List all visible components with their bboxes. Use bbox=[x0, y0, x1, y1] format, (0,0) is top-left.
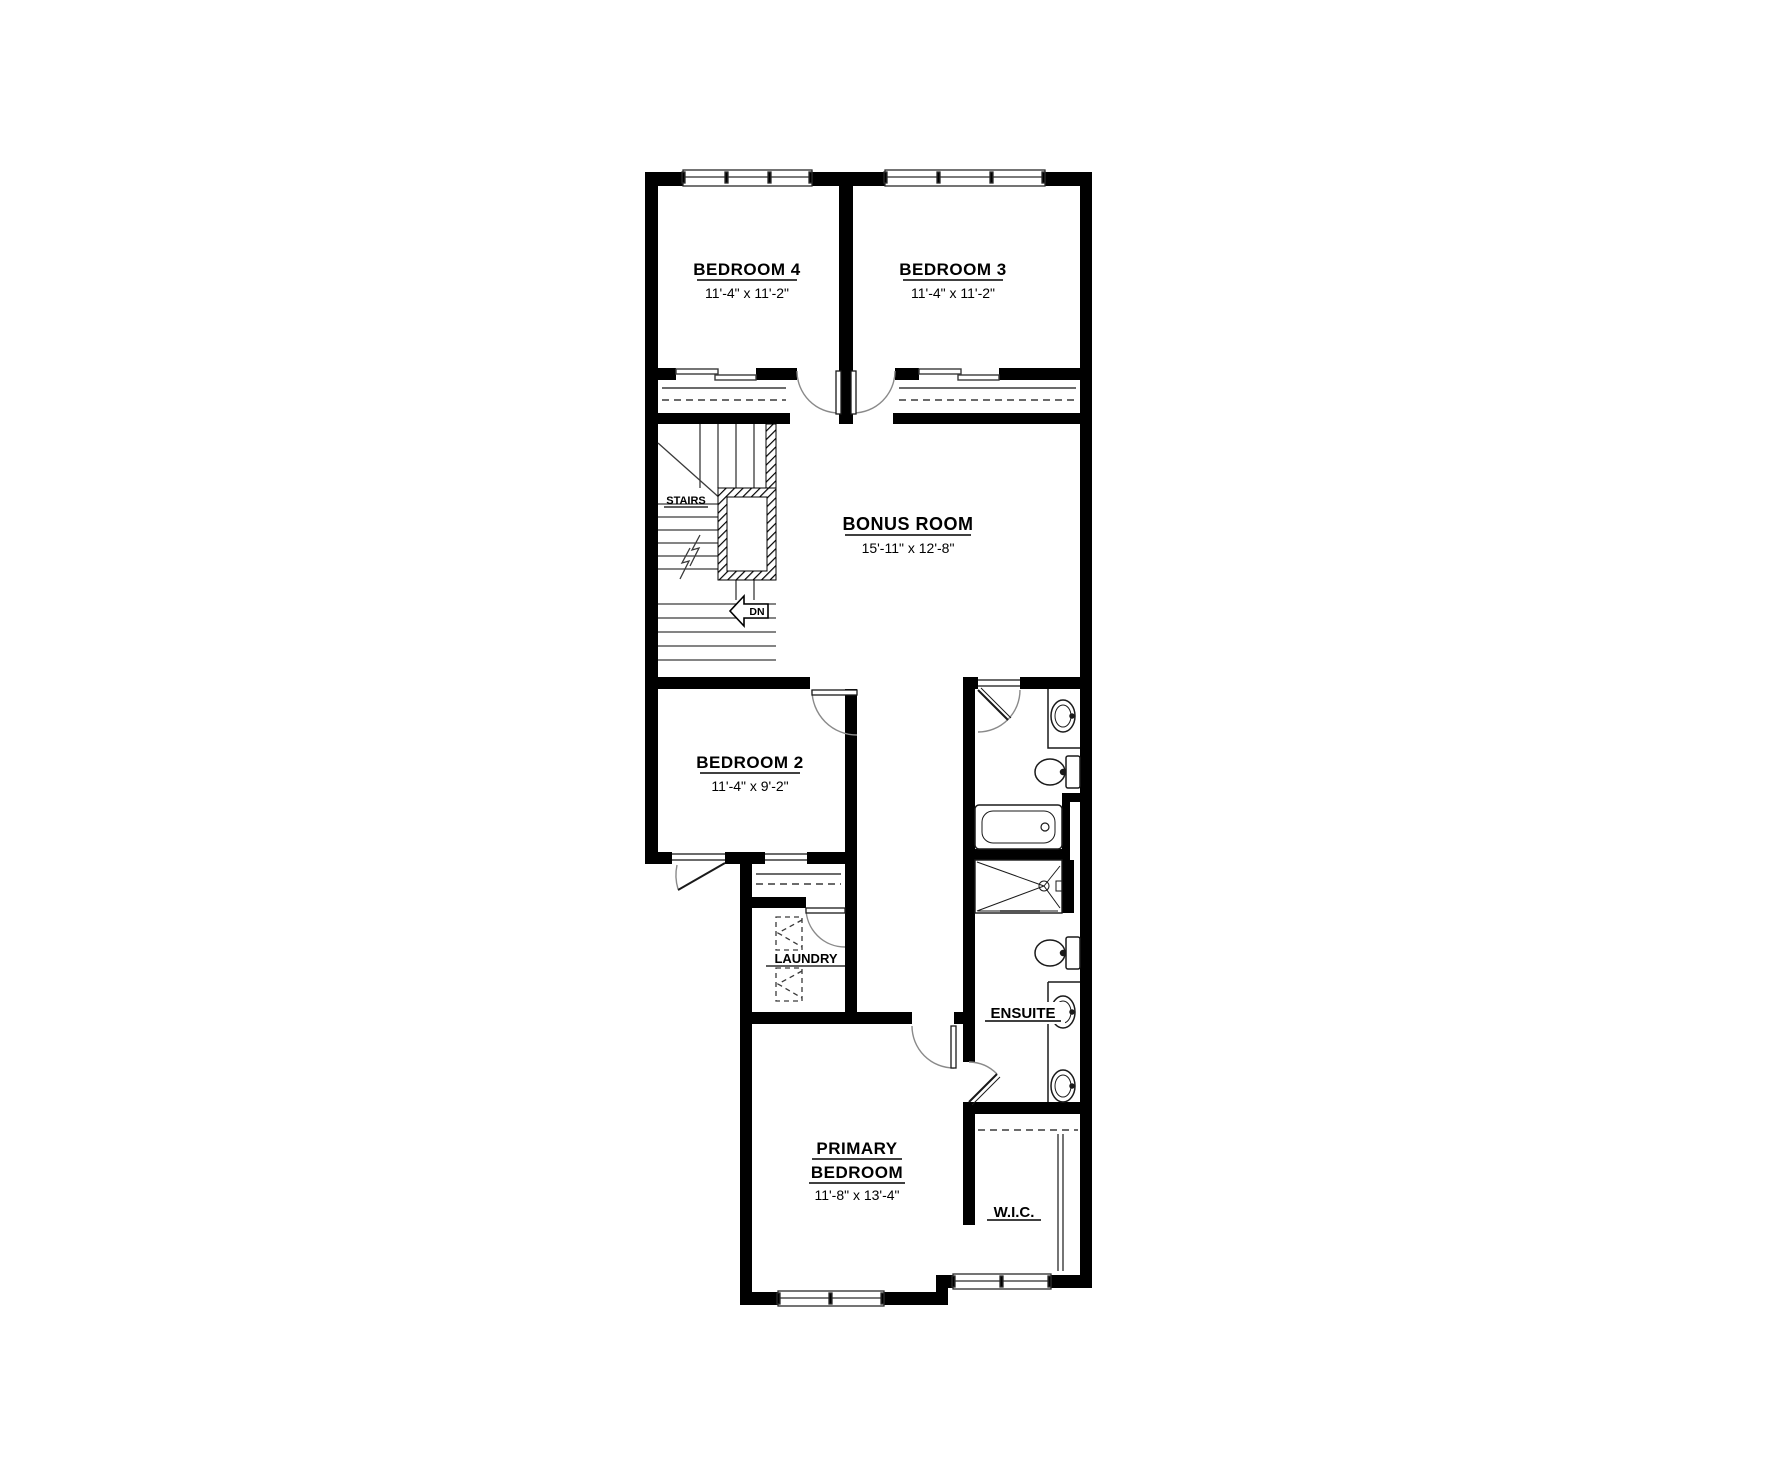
wall-closet-bottom-right bbox=[893, 413, 1080, 424]
exterior-door-arc bbox=[676, 865, 678, 889]
wall-wic-bottom-b bbox=[1051, 1275, 1092, 1288]
primary-door-leaf bbox=[951, 1026, 956, 1068]
sink-icon bbox=[1051, 700, 1075, 732]
wic-window bbox=[952, 1274, 1051, 1289]
bathtub-icon bbox=[975, 805, 1062, 849]
wall-bath-top-b bbox=[1020, 677, 1092, 689]
ensuite-door-arc bbox=[969, 1062, 997, 1074]
stair-break-mark bbox=[690, 535, 700, 566]
wall-corridor bbox=[845, 689, 857, 1012]
room-dims: 15'-11" x 12'-8" bbox=[862, 540, 955, 556]
ensuite-door-leaf bbox=[969, 1074, 997, 1102]
wall-bedroom2-bottom-b bbox=[725, 852, 765, 864]
bath-door-header bbox=[978, 680, 1020, 686]
stairs-text: STAIRS bbox=[666, 495, 706, 507]
bedroom3-label: BEDROOM 3 11'-4" x 11'-2" bbox=[899, 260, 1006, 301]
sink-icon bbox=[1051, 1070, 1075, 1102]
room-name: BEDROOM bbox=[811, 1163, 903, 1182]
bedroom4-door-leaf bbox=[836, 371, 841, 414]
bedroom3-closet-shelf bbox=[899, 388, 1076, 400]
bedroom4-closet-doors bbox=[676, 369, 756, 380]
room-name: W.I.C. bbox=[994, 1204, 1035, 1221]
stair-railing bbox=[718, 424, 776, 580]
wic-shelving bbox=[978, 1130, 1078, 1271]
laundry-door-arc bbox=[806, 908, 845, 947]
down-label: DN bbox=[749, 606, 764, 618]
bath-door-leaf bbox=[978, 690, 1008, 720]
wall-wic-left bbox=[963, 1114, 975, 1225]
ensuite-label: ENSUITE bbox=[983, 1002, 1065, 1024]
stair-cut-line bbox=[658, 443, 722, 500]
wall-left-upper bbox=[645, 172, 658, 864]
wall-bath-stub-v bbox=[1062, 793, 1070, 855]
laundry-door-leaf bbox=[806, 908, 845, 913]
ensuite-vanity bbox=[1048, 982, 1080, 1102]
bedroom4-window bbox=[682, 170, 812, 186]
wall-closet-seg bbox=[756, 368, 797, 380]
room-dims: 11'-8" x 13'-4" bbox=[814, 1187, 899, 1203]
wall-closet-bottom-left bbox=[658, 413, 790, 424]
bedroom3-closet-doors bbox=[919, 369, 999, 380]
wall-laundry-top bbox=[752, 897, 806, 908]
stair-break-mark bbox=[680, 548, 690, 579]
wall-right bbox=[1080, 172, 1092, 1288]
windows bbox=[682, 170, 1051, 1306]
bath-vanity bbox=[1048, 689, 1080, 748]
bedroom3-door-arc bbox=[853, 371, 895, 413]
shower-icon bbox=[975, 860, 1062, 914]
primary-door-arc bbox=[912, 1026, 954, 1068]
labels: BEDROOM 4 11'-4" x 11'-2" BEDROOM 3 11'-… bbox=[664, 260, 1065, 1221]
wall-wic-bottom-a bbox=[936, 1275, 953, 1288]
bedroom4-door-arc bbox=[797, 371, 839, 413]
wall-ensuite-bottom bbox=[963, 1102, 1092, 1114]
bedroom2-door-leaf bbox=[812, 690, 857, 695]
wall-left-lower bbox=[740, 852, 752, 1305]
toilet-icon bbox=[1035, 756, 1080, 788]
linen-shelf bbox=[756, 874, 841, 884]
floor-plan-page: BEDROOM 4 11'-4" x 11'-2" BEDROOM 3 11'-… bbox=[0, 0, 1780, 1480]
primary-bedroom-label: PRIMARY BEDROOM 11'-8" x 13'-4" bbox=[809, 1139, 905, 1203]
wall-primary-top-stub bbox=[954, 1012, 963, 1024]
room-name: BEDROOM 3 bbox=[899, 260, 1006, 279]
bath-door-leaf bbox=[981, 688, 1011, 718]
wall-bath-bottom bbox=[963, 849, 1070, 860]
bedroom3-door-leaf bbox=[851, 371, 856, 414]
room-dims: 11'-4" x 11'-2" bbox=[911, 285, 995, 301]
walls bbox=[645, 172, 1092, 1305]
room-name: ENSUITE bbox=[990, 1005, 1055, 1022]
laundry-label: LAUNDRY bbox=[766, 951, 846, 966]
bonus-room-label: BONUS ROOM 15'-11" x 12'-8" bbox=[843, 514, 974, 556]
stairs bbox=[658, 424, 776, 660]
room-dims: 11'-4" x 11'-2" bbox=[705, 285, 789, 301]
wic-label: W.I.C. bbox=[987, 1204, 1041, 1221]
room-name: BEDROOM 4 bbox=[693, 260, 801, 279]
primary-bedroom-window bbox=[777, 1291, 884, 1306]
room-name: BONUS ROOM bbox=[843, 514, 974, 534]
bedroom3-window bbox=[884, 170, 1045, 186]
wall-closet-seg bbox=[895, 368, 919, 380]
wall-closet-seg bbox=[658, 368, 676, 380]
floor-plan-drawing: BEDROOM 4 11'-4" x 11'-2" BEDROOM 3 11'-… bbox=[0, 0, 1780, 1480]
wall-primary-bottom-a bbox=[740, 1292, 778, 1305]
wall-bedroom2-bottom-c bbox=[807, 852, 857, 864]
room-name: LAUNDRY bbox=[774, 951, 837, 966]
wall-bath-top-a bbox=[963, 677, 978, 689]
toilet-icon bbox=[1035, 937, 1080, 969]
ensuite-door-leaf bbox=[972, 1077, 1000, 1105]
wall-hall bbox=[963, 677, 975, 1062]
bedroom2-label: BEDROOM 2 11'-4" x 9'-2" bbox=[696, 753, 803, 794]
wall-top-b bbox=[812, 172, 885, 186]
room-name: BEDROOM 2 bbox=[696, 753, 803, 772]
room-name: PRIMARY bbox=[816, 1139, 897, 1158]
bedroom4-closet-shelf bbox=[662, 388, 786, 400]
bedroom4-label: BEDROOM 4 11'-4" x 11'-2" bbox=[693, 260, 801, 301]
wall-bedroom2-top bbox=[645, 677, 810, 689]
wall-shower-stub bbox=[1062, 860, 1074, 913]
wall-closet-seg bbox=[999, 368, 1080, 380]
wall-primary-top bbox=[740, 1012, 912, 1024]
wall-bedroom2-bottom-a bbox=[645, 852, 672, 864]
exterior-door-leaf bbox=[678, 863, 725, 890]
room-dims: 11'-4" x 9'-2" bbox=[711, 778, 788, 794]
